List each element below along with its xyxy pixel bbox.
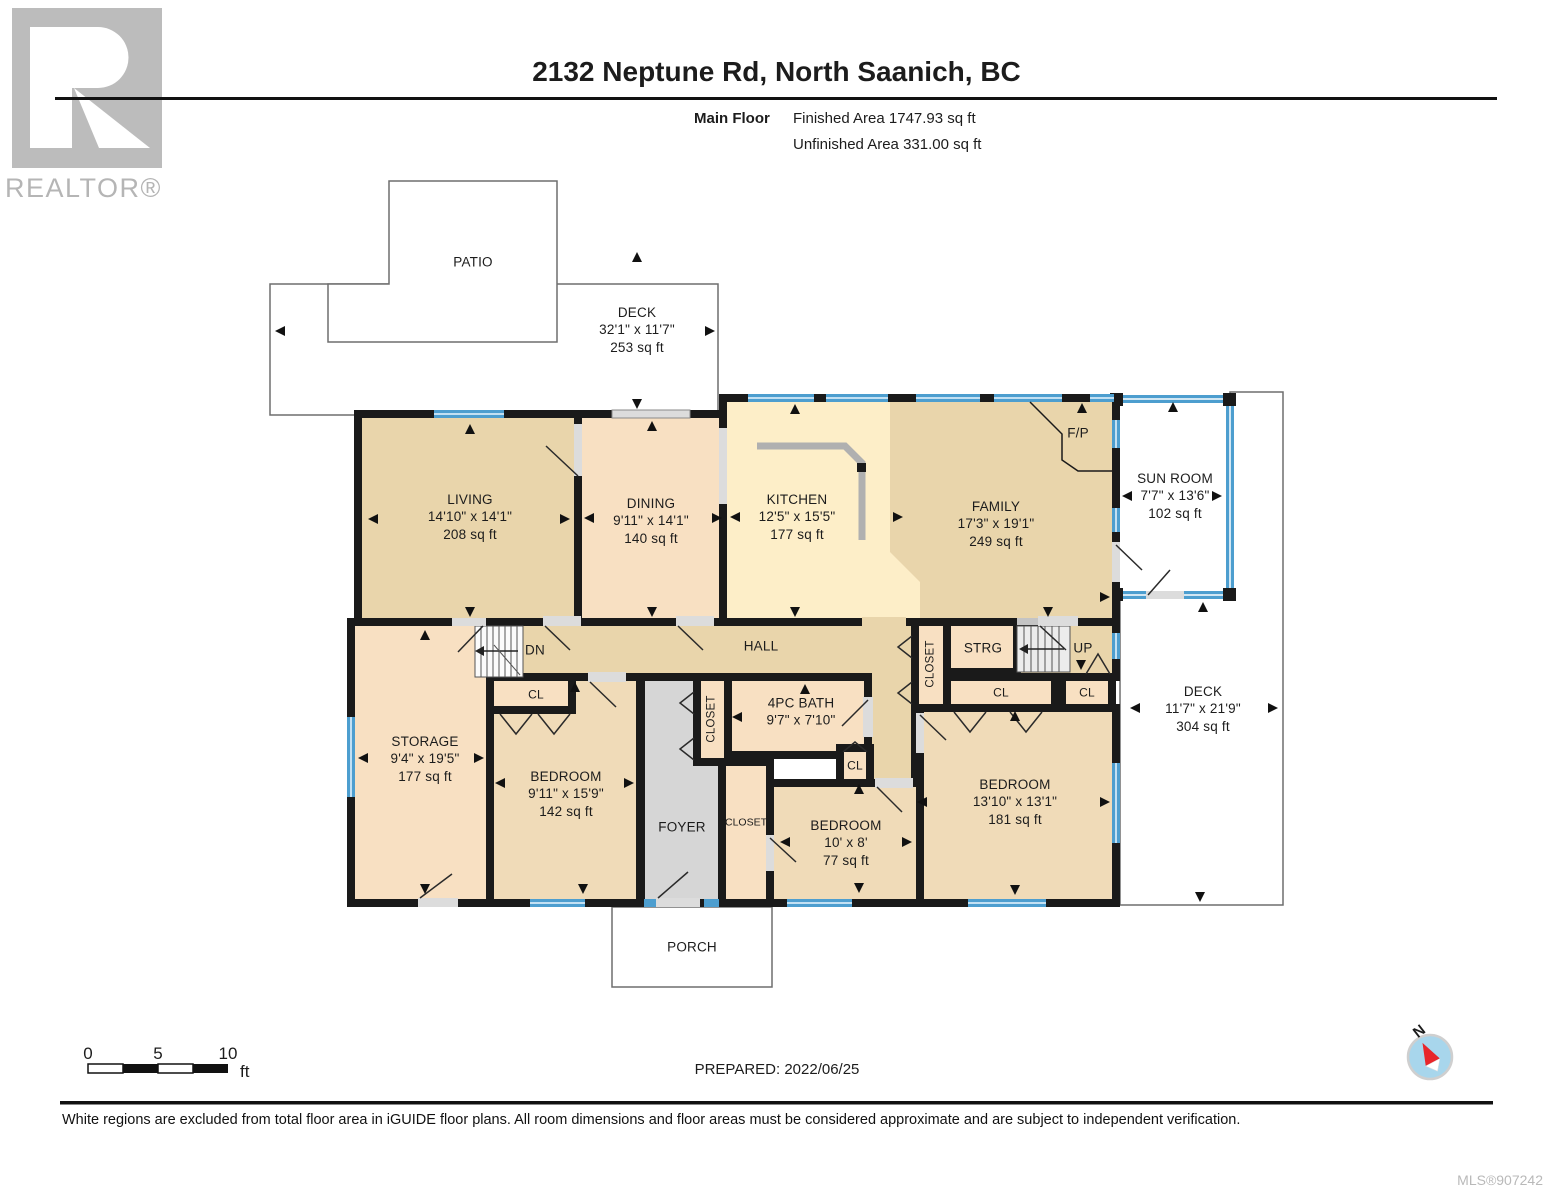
realtor-logo-icon [12,8,162,168]
room-label-living: LIVING14'10" x 14'1"208 sq ft [428,491,512,543]
room-label-bedroom2: BEDROOM10' x 8'77 sq ft [810,817,881,869]
label-strg: STRG [964,639,1002,656]
label-stairs-down: DN [525,641,545,658]
room-label-sunroom: SUN ROOM7'7" x 13'6"102 sq ft [1137,470,1213,522]
room-label-family: FAMILY17'3" x 19'1"249 sq ft [958,498,1035,550]
patio-area [328,181,557,342]
floor-label: Main Floor [694,110,770,127]
scale-tick-0: 0 [83,1044,92,1064]
scale-unit: ft [240,1062,249,1082]
room-label-bedroom3: BEDROOM13'10" x 13'1"181 sq ft [973,776,1057,828]
prepared-date: PREPARED: 2022/06/25 [695,1061,860,1078]
stairs-down [475,626,523,677]
floor-plan-drawing [0,0,1553,1200]
scale-tick-10: 10 [219,1044,238,1064]
closet-foyer-b [722,762,770,903]
room-label-deck-top: DECK32'1" x 11'7"253 sq ft [599,304,675,356]
room-label-deck-right: DECK11'7" x 21'9"304 sq ft [1165,683,1241,735]
mls-number: MLS®907242 [1457,1172,1543,1188]
label-closet-foyer-v: CLOSET [705,695,720,742]
room-label-patio: PATIO [453,253,493,270]
label-closet-foyer-b: CLOSET [725,816,767,829]
label-cl-a: CL [528,687,544,702]
floor-plan-page: 2132 Neptune Rd, North Saanich, BC REALT… [0,0,1553,1200]
label-closet-hall: CLOSET [924,640,939,687]
page-title: 2132 Neptune Rd, North Saanich, BC [0,56,1553,88]
label-foyer: FOYER [658,818,706,835]
footer-rule [60,1101,1493,1105]
label-stairs-up: UP [1073,639,1092,656]
label-cl-b: CL [847,758,863,773]
unfinished-area: Unfinished Area 331.00 sq ft [793,136,981,153]
realtor-logo-text: REALTOR® [5,173,162,204]
room-label-kitchen: KITCHEN12'5" x 15'5"177 sq ft [759,491,836,543]
label-cl-d: CL [1079,685,1095,700]
room-label-dining: DINING9'11" x 14'1"140 sq ft [613,495,689,547]
scale-bar [88,1064,228,1073]
label-cl-c: CL [993,685,1009,700]
label-hall: HALL [744,637,779,654]
room-label-storage: STORAGE9'4" x 19'5"177 sq ft [391,733,460,785]
disclaimer-text: White regions are excluded from total fl… [62,1112,1240,1128]
room-label-bath: 4PC BATH9'7" x 7'10" [767,695,836,730]
scale-tick-5: 5 [153,1044,162,1064]
room-label-bedroom1: BEDROOM9'11" x 15'9"142 sq ft [528,768,604,820]
stairs-up [1017,618,1070,672]
label-porch: PORCH [667,938,717,955]
compass-icon [1408,1035,1452,1079]
hall-arm-floor [868,677,915,789]
header-rule [55,97,1497,100]
finished-area: Finished Area 1747.93 sq ft [793,110,976,127]
label-fireplace: F/P [1067,424,1089,441]
